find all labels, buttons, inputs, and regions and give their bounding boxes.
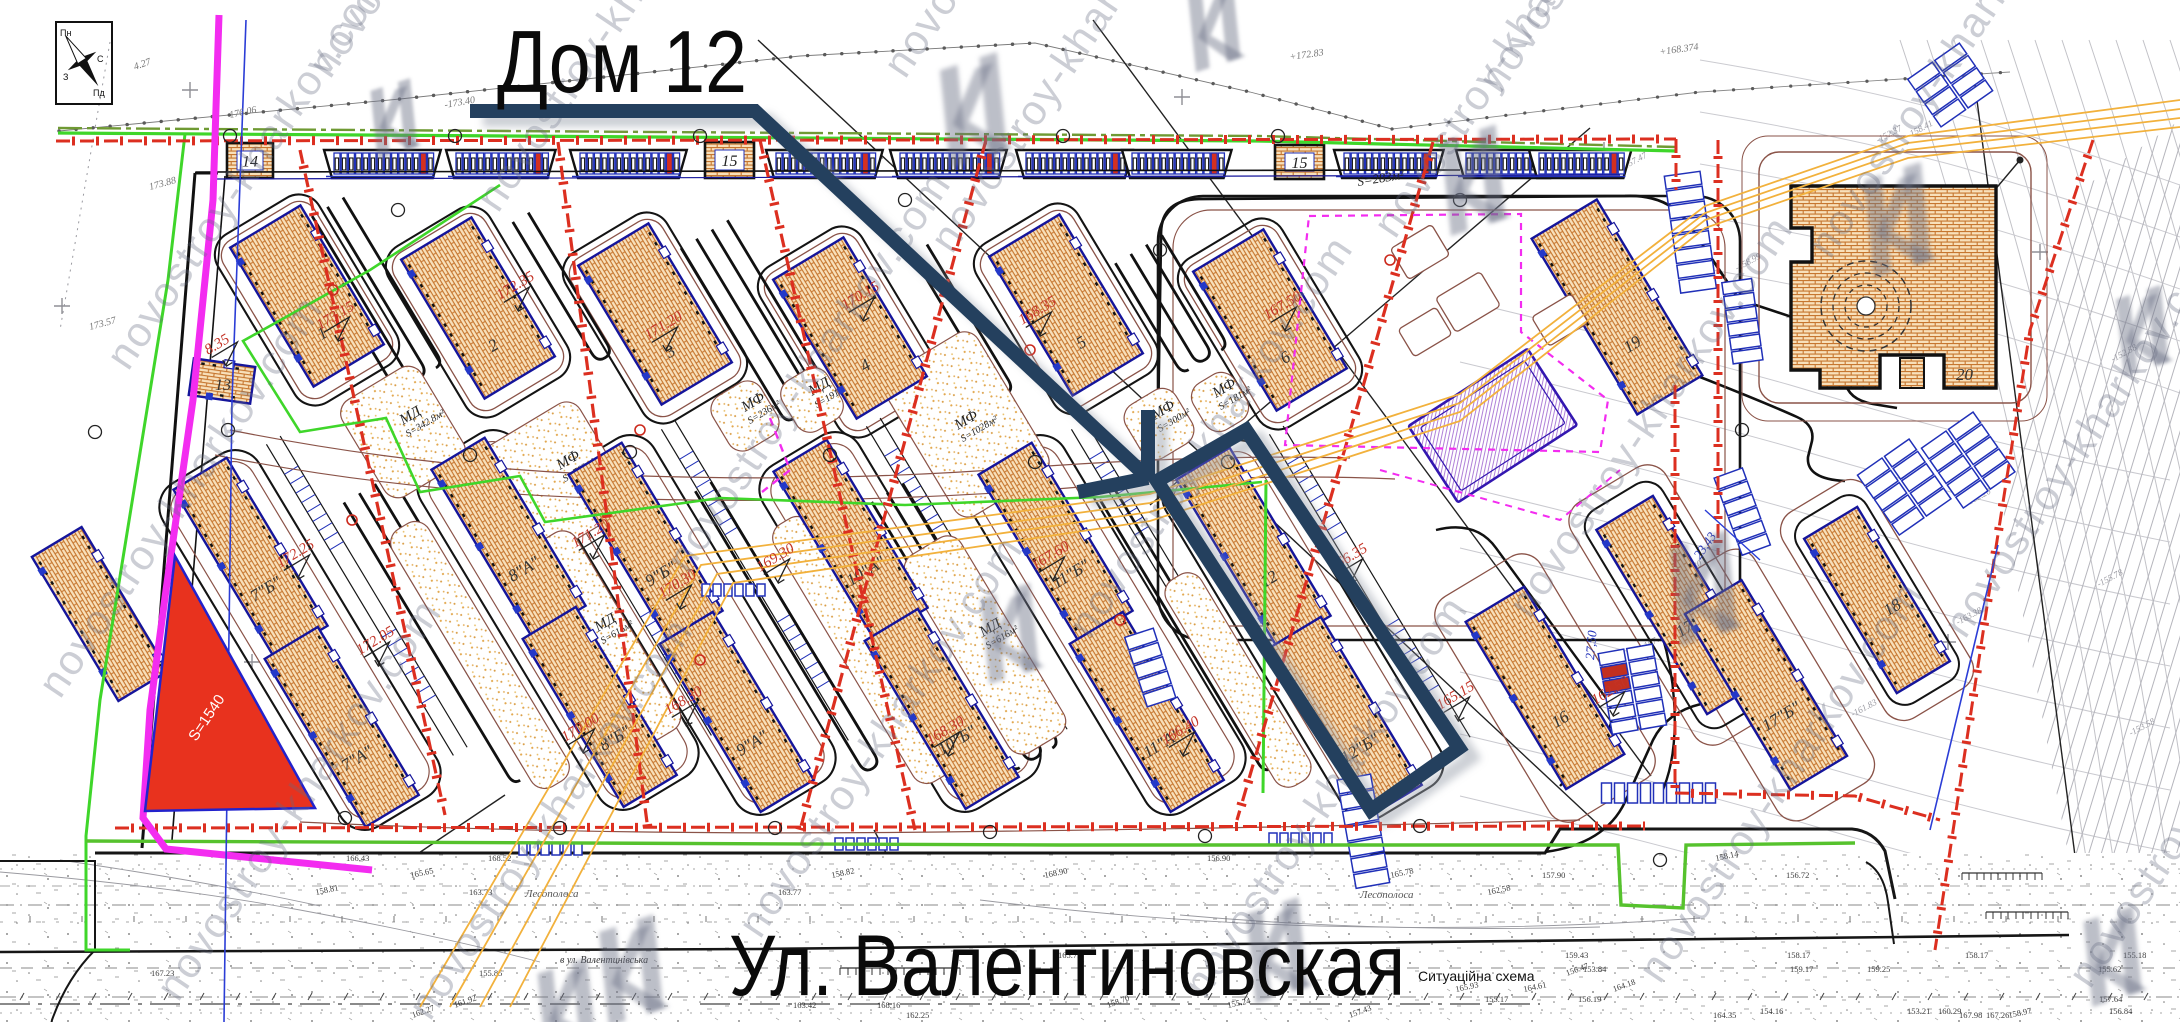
svg-text:Дом 12: Дом 12 — [497, 12, 747, 111]
svg-text:159.25: 159.25 — [1867, 964, 1890, 974]
svg-text:159.43: 159.43 — [1565, 950, 1588, 960]
svg-text:Пд: Пд — [93, 88, 105, 98]
svg-text:167.26: 167.26 — [1986, 1010, 2009, 1020]
svg-text:156.84: 156.84 — [2109, 1006, 2133, 1016]
svg-text:159.17: 159.17 — [1790, 964, 1813, 974]
svg-text:167.98: 167.98 — [1959, 1010, 1982, 1020]
svg-text:15: 15 — [722, 153, 738, 170]
svg-text:20: 20 — [1956, 365, 1974, 384]
svg-text:З: З — [63, 72, 68, 82]
svg-text:156.72: 156.72 — [1786, 870, 1809, 880]
svg-text:158.17: 158.17 — [1965, 950, 1988, 960]
svg-text:153.84: 153.84 — [1583, 964, 1607, 974]
svg-text:156.90: 156.90 — [1207, 853, 1230, 863]
svg-text:Лесополоса: Лесополоса — [1359, 889, 1414, 901]
svg-text:Пн: Пн — [60, 28, 71, 38]
svg-text:166.43: 166.43 — [346, 853, 369, 863]
svg-text:С: С — [97, 54, 104, 64]
svg-text:158.17: 158.17 — [1787, 950, 1810, 960]
svg-text:Ситуаційна схема: Ситуаційна схема — [1418, 968, 1535, 984]
svg-text:Ул. Валентиновская: Ул. Валентиновская — [729, 918, 1405, 1014]
svg-text:27,50: 27,50 — [1582, 629, 1600, 660]
svg-text:156.19: 156.19 — [1578, 994, 1601, 1004]
svg-text:164.35: 164.35 — [1713, 1010, 1736, 1020]
svg-text:153.21: 153.21 — [1907, 1006, 1930, 1016]
svg-text:154.16: 154.16 — [1760, 1006, 1783, 1016]
svg-text:157.90: 157.90 — [1542, 870, 1565, 880]
svg-text:160.29: 160.29 — [1938, 1006, 1961, 1016]
